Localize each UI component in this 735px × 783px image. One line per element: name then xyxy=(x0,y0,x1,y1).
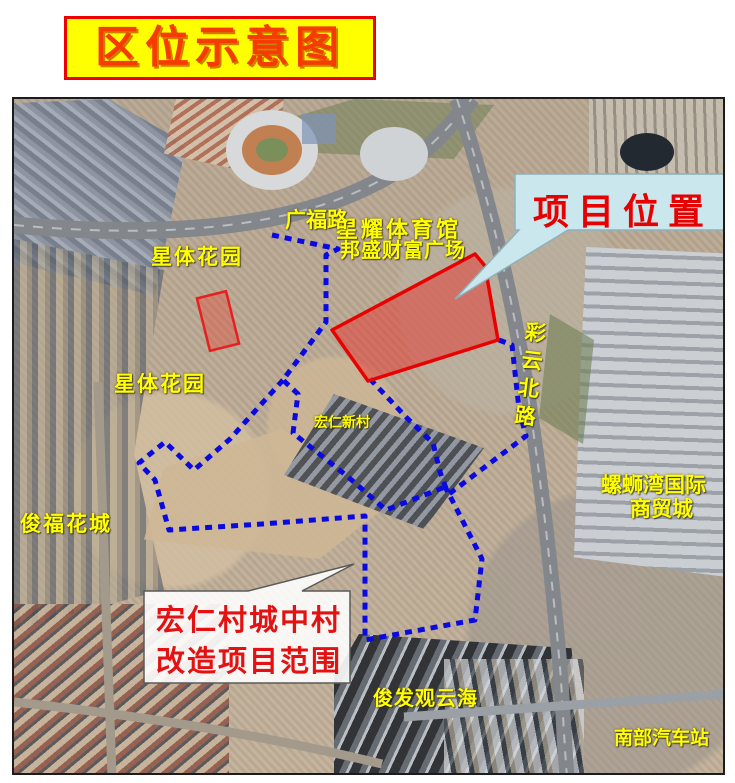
arena-oval xyxy=(360,127,428,181)
boundary-inner-line xyxy=(370,379,447,491)
label-bangsheng-plaza: 邦盛财富广场 xyxy=(340,240,466,261)
label-junfu-huacheng: 俊福花城 xyxy=(20,513,112,535)
project-site-polygon xyxy=(332,254,498,381)
boundary-main-line xyxy=(272,235,445,510)
label-guangfu-road: 广福路 xyxy=(285,209,348,231)
location-map: 星耀体育馆 广福路 星体花园 邦盛财富广场 星体花园 宏仁新村 彩云北路 螺蛳湾… xyxy=(12,97,725,775)
page-title-plate: 区位示意图 xyxy=(64,16,376,80)
label-xingti-garden-south: 星体花园 xyxy=(114,373,206,395)
plaza-block xyxy=(302,114,336,144)
callout-range-line1: 宏仁村城中村 xyxy=(156,600,342,641)
label-luosiwan-line2: 商贸城 xyxy=(630,498,693,520)
label-xingti-garden-north: 星体花园 xyxy=(151,246,243,268)
red-outlined-block xyxy=(197,291,239,351)
page: { "title": { "text": "区位示意图" }, "map": {… xyxy=(0,0,735,783)
road-southwest xyxy=(14,702,382,764)
page-title: 区位示意图 xyxy=(95,26,345,70)
stadium-field xyxy=(256,138,288,162)
label-junfa-guanyunhai: 俊发观云海 xyxy=(373,688,478,709)
label-hongren-village: 宏仁新村 xyxy=(314,416,370,431)
callout-range-line2: 改造项目范围 xyxy=(156,641,342,682)
pond xyxy=(620,133,674,171)
label-south-bus-station: 南部汽车站 xyxy=(614,729,709,749)
callout-project-location-text: 项目位置 xyxy=(533,183,713,235)
label-luosiwan-line1: 螺蛳湾国际 xyxy=(601,474,706,496)
callout-renovation-range-text: 宏仁村城中村 改造项目范围 xyxy=(156,600,342,681)
